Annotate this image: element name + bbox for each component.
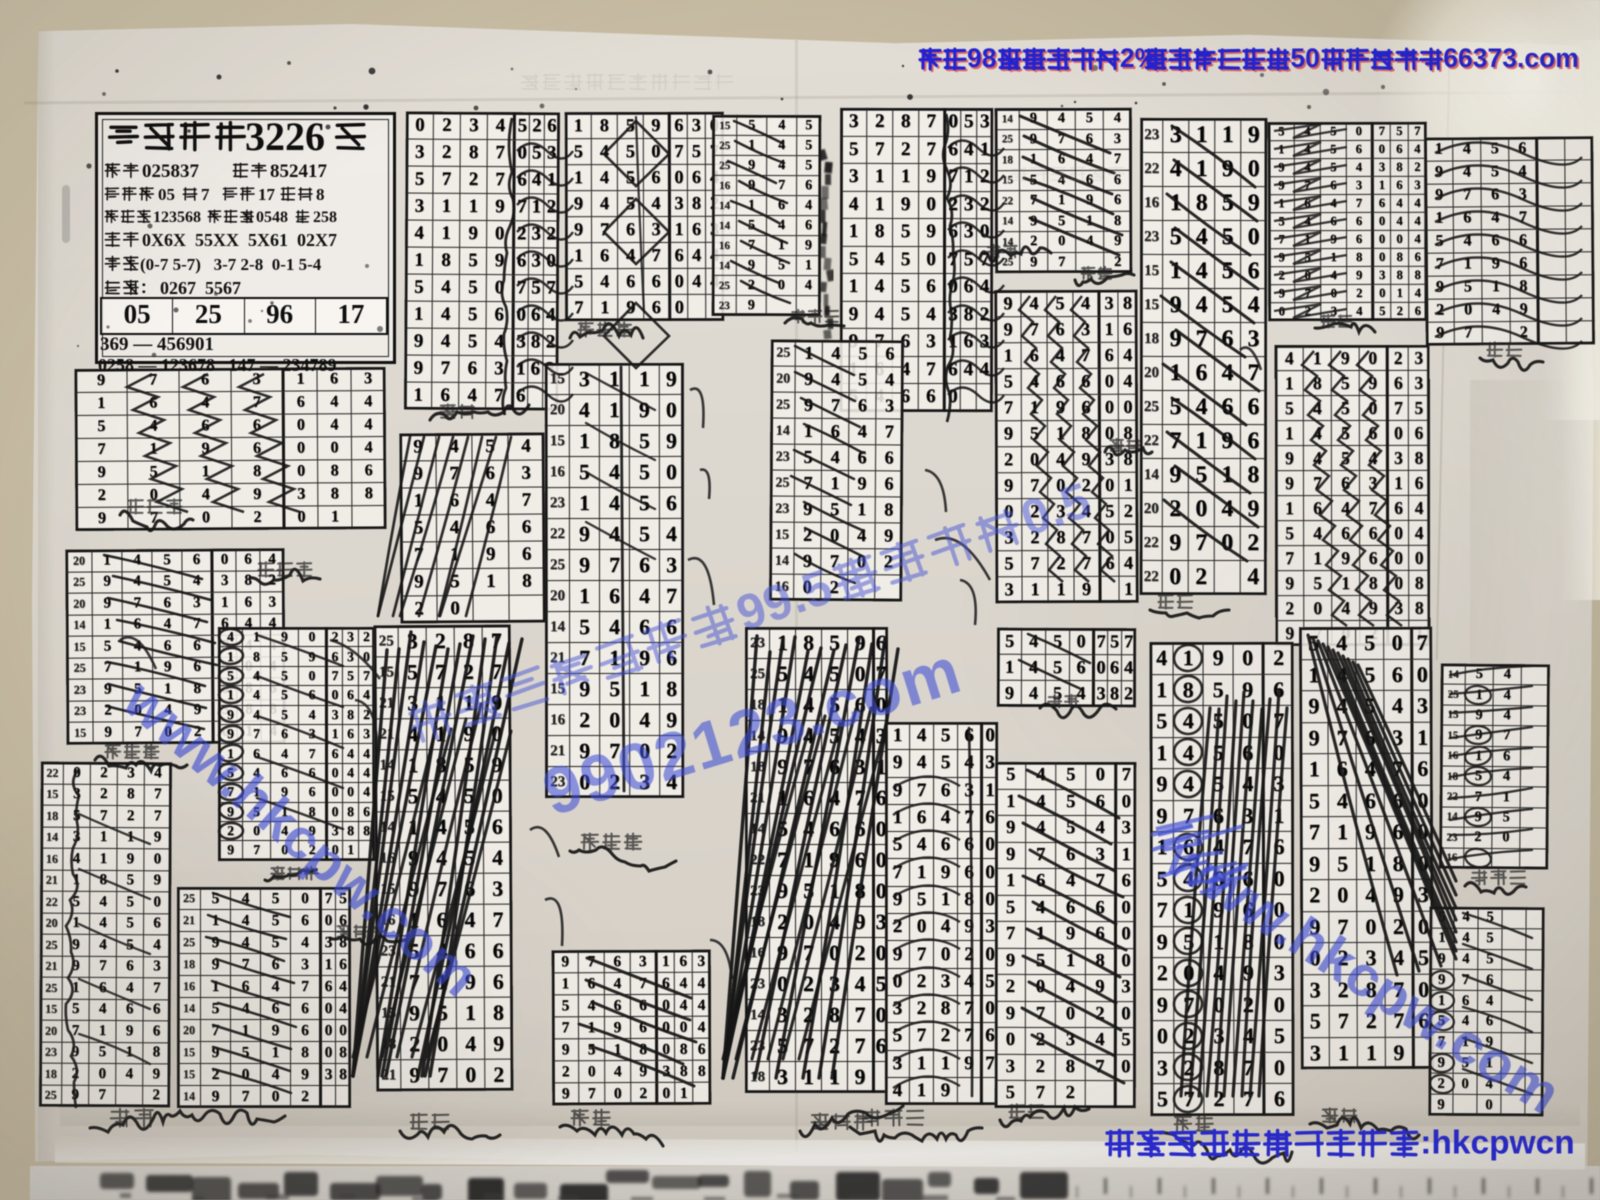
svg-text:3226: 3226: [245, 114, 325, 159]
svg-text:(0-7 5-7) 3-7 2-8 0-1 5-4: (0-7 5-7) 3-7 2-8 0-1 5-4: [140, 255, 322, 274]
svg-text:258: 258: [313, 209, 337, 226]
svg-text:0258 — 123678 147 — 234789: 0258 — 123678 147 — 234789: [98, 355, 337, 375]
svg-text:025837: 025837: [142, 161, 200, 182]
svg-text:123568: 123568: [153, 209, 201, 226]
svg-text:99.5: 99.5: [730, 558, 839, 642]
svg-text:852417: 852417: [270, 161, 328, 182]
svg-text::hkcpwcn: :hkcpwcn: [1420, 1124, 1575, 1161]
svg-text:66373.com: 66373.com: [1443, 43, 1579, 73]
svg-text:0X6X 55XX 5X61 02X7: 0X6X 55XX 5X61 02X7: [142, 230, 337, 250]
svg-text:7: 7: [201, 185, 210, 204]
svg-text::: :: [141, 276, 147, 297]
svg-text:369 — 456901: 369 — 456901: [100, 334, 214, 355]
svg-text:8: 8: [316, 185, 325, 204]
svg-text:17: 17: [258, 185, 276, 204]
svg-text:0548: 0548: [256, 209, 288, 226]
svg-text:0.5: 0.5: [1014, 472, 1097, 547]
svg-text:0267 5567: 0267 5567: [160, 278, 241, 298]
svg-text:50: 50: [1290, 43, 1319, 73]
svg-text:9902123.com: 9902123.com: [534, 632, 970, 829]
svg-text:05: 05: [158, 185, 175, 204]
svg-text:98: 98: [967, 43, 996, 73]
